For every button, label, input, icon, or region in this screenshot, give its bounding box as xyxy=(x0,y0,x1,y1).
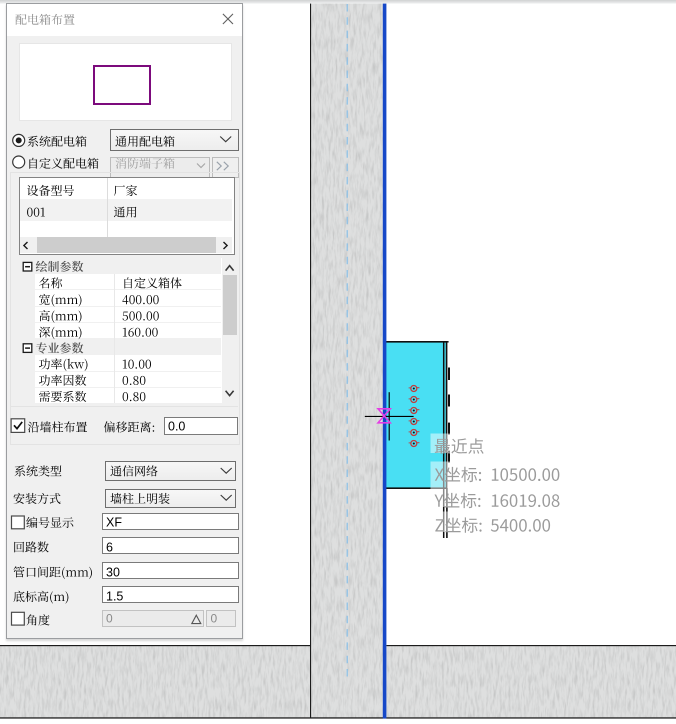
svg-text:0.0: 0.0 xyxy=(168,420,185,434)
svg-text:0: 0 xyxy=(106,612,113,626)
svg-text:XF: XF xyxy=(106,516,122,530)
svg-text:30: 30 xyxy=(106,566,120,580)
svg-text:1.5: 1.5 xyxy=(106,590,123,604)
svg-text:0: 0 xyxy=(211,612,218,626)
svg-text:6: 6 xyxy=(106,541,113,555)
